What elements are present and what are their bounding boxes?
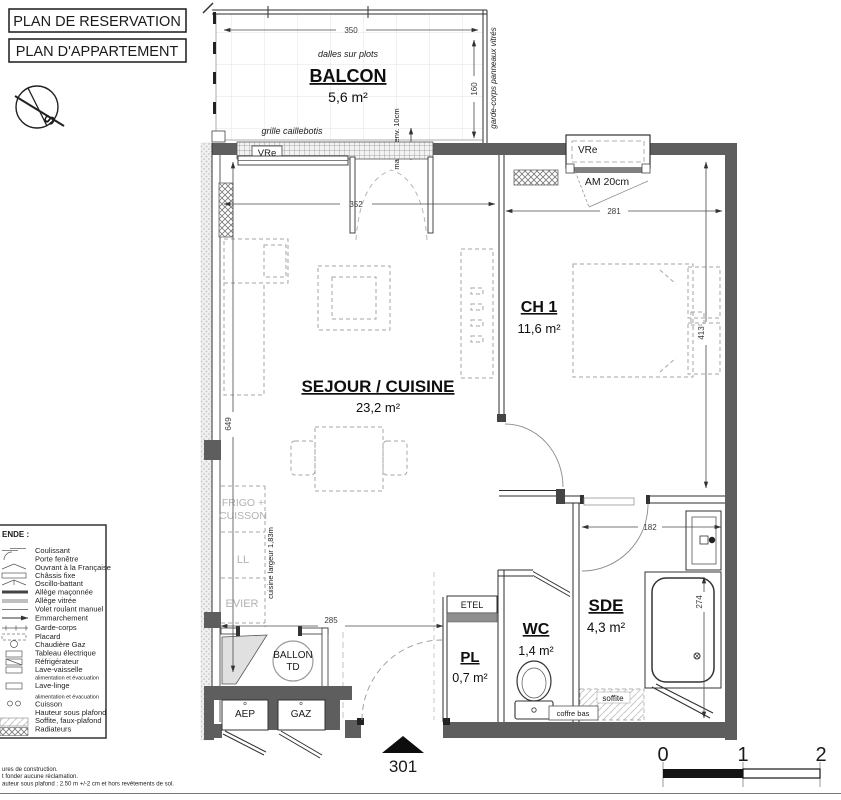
dim-hall-width: 285 xyxy=(324,616,338,625)
unit-number: 301 xyxy=(389,757,417,776)
ballon-label-2: TD xyxy=(286,662,299,673)
etel-label: ETEL xyxy=(461,600,484,610)
dim-ch1-width: 281 xyxy=(607,207,621,216)
wc-area: 1,4 m² xyxy=(518,644,553,658)
ch1-door-swing xyxy=(505,424,563,487)
coffee-table xyxy=(318,266,390,330)
am-note: AM 20cm xyxy=(585,176,630,188)
room-sejour: SEJOUR / CUISINE 23,2 m² xyxy=(219,183,493,627)
ch1-area: 11,6 m² xyxy=(517,321,561,336)
legend: ENDE : Coulissant Porte fenêtre Ouvrant … xyxy=(0,525,111,738)
aep-label: AEP xyxy=(235,709,255,720)
room-wc: WC 1,4 m² xyxy=(515,621,554,719)
balcony-threshold xyxy=(212,131,225,142)
radiator-ch1 xyxy=(514,170,558,185)
sde-door-swing xyxy=(582,504,648,571)
bed xyxy=(573,264,720,377)
pl-area: 0,7 m² xyxy=(452,671,487,685)
railing-note: garde-corps panneaux vitrés xyxy=(489,27,498,128)
balcony-door-jamb-left xyxy=(350,157,355,233)
entrance-arrow-icon xyxy=(382,736,424,753)
legend-item: Lave-linge xyxy=(35,681,70,690)
balcony-grille-note: grille caillebotis xyxy=(261,126,323,136)
room-pl: ETEL PL 0,7 m² xyxy=(447,596,497,685)
vanity-icon xyxy=(686,511,721,570)
sde-label: SDE xyxy=(589,596,624,615)
shower-icon xyxy=(645,572,721,718)
legend-radiator-swatch xyxy=(0,728,28,736)
step-note: marche env. 10cm xyxy=(392,108,401,169)
scale-bar: 0 1 2 xyxy=(657,744,826,787)
pl-label: PL xyxy=(460,649,479,666)
balcony-floor-note: dalles sur plots xyxy=(318,49,379,59)
sejour-label: SEJOUR / CUISINE xyxy=(301,377,454,396)
plan-title-1: PLAN DE RESERVATION xyxy=(13,14,181,30)
footnote-3: auteur sous plafond : 2.50 m +/-2 cm et … xyxy=(2,782,174,788)
kitchen-counter: FRIGO + CUISSON LL EVIER cuisine largeur… xyxy=(219,486,275,627)
legend-item: Volet roulant manuel xyxy=(35,605,104,614)
kitchen-width-note: cuisine largeur 1,83m xyxy=(266,527,275,599)
ch1-label: CH 1 xyxy=(521,299,558,316)
legend-soffit-swatch xyxy=(0,718,28,726)
soffit-label: soffite xyxy=(602,694,624,703)
closet-door-panel xyxy=(222,635,267,684)
compass-south-label: S xyxy=(40,112,58,127)
entry-area: BALLON TD AEP GAZ 301 xyxy=(204,626,442,776)
dim-sejour-height: 649 xyxy=(224,417,233,431)
dim-sejour-width: 352 xyxy=(349,200,363,209)
scale-2: 2 xyxy=(815,744,826,766)
entrance-door-swing xyxy=(362,640,442,720)
room-ch1: CH 1 11,6 m² AM 20cm xyxy=(514,170,720,377)
wc-label: WC xyxy=(523,621,550,638)
water-heater-icon: BALLON TD xyxy=(273,641,313,681)
ch1-window-label: VRe xyxy=(578,145,598,156)
fridge-label-1: FRIGO + xyxy=(222,497,264,509)
dim-sde-height: 274 xyxy=(695,595,704,609)
plan-title-2: PLAN D'APPARTEMENT xyxy=(16,44,179,60)
legend-item: Garde-corps xyxy=(35,623,77,632)
radiator-sejour xyxy=(219,183,233,237)
balcony-area: 5,6 m² xyxy=(328,89,368,105)
dim-ch1-height: 413 xyxy=(697,326,706,340)
footnote-2: t fonder aucune réclamation. xyxy=(2,774,78,780)
ballon-label-1: BALLON xyxy=(273,650,312,661)
dim-balcony-depth: 160 xyxy=(470,82,479,96)
balcony-label: BALCON xyxy=(310,66,387,86)
legend-item: Radiateurs xyxy=(35,725,72,734)
sofa xyxy=(224,239,288,395)
coffre-label: coffre bas xyxy=(557,709,590,718)
toilet-icon xyxy=(515,661,553,719)
sejour-area: 23,2 m² xyxy=(356,400,401,415)
compass-icon: S xyxy=(15,86,64,128)
wardrobe xyxy=(461,249,493,378)
footnote-1: ures de construction. xyxy=(2,767,58,773)
dim-balcony-width: 350 xyxy=(344,26,358,35)
title-block: PLAN DE RESERVATION PLAN D'APPARTEMENT xyxy=(9,9,186,62)
legend-item: Lave-vaisselle xyxy=(35,665,83,674)
sde-area: 4,3 m² xyxy=(587,620,626,635)
floor-plan: PLAN DE RESERVATION PLAN D'APPARTEMENT S… xyxy=(0,0,841,800)
room-sde: SDE 4,3 m² soffite coffre bas xyxy=(549,511,721,720)
fridge-label-2: CUISSON xyxy=(219,510,267,522)
legend-title: ENDE : xyxy=(2,530,29,539)
washer-label: LL xyxy=(237,554,249,566)
dining-table xyxy=(291,427,407,491)
balcony-door-jamb-right xyxy=(428,157,433,233)
sink-label: EVIER xyxy=(225,598,258,610)
gaz-label: GAZ xyxy=(291,709,312,720)
legend-item: Emmarchement xyxy=(35,614,89,623)
dim-sde-width: 182 xyxy=(643,523,657,532)
